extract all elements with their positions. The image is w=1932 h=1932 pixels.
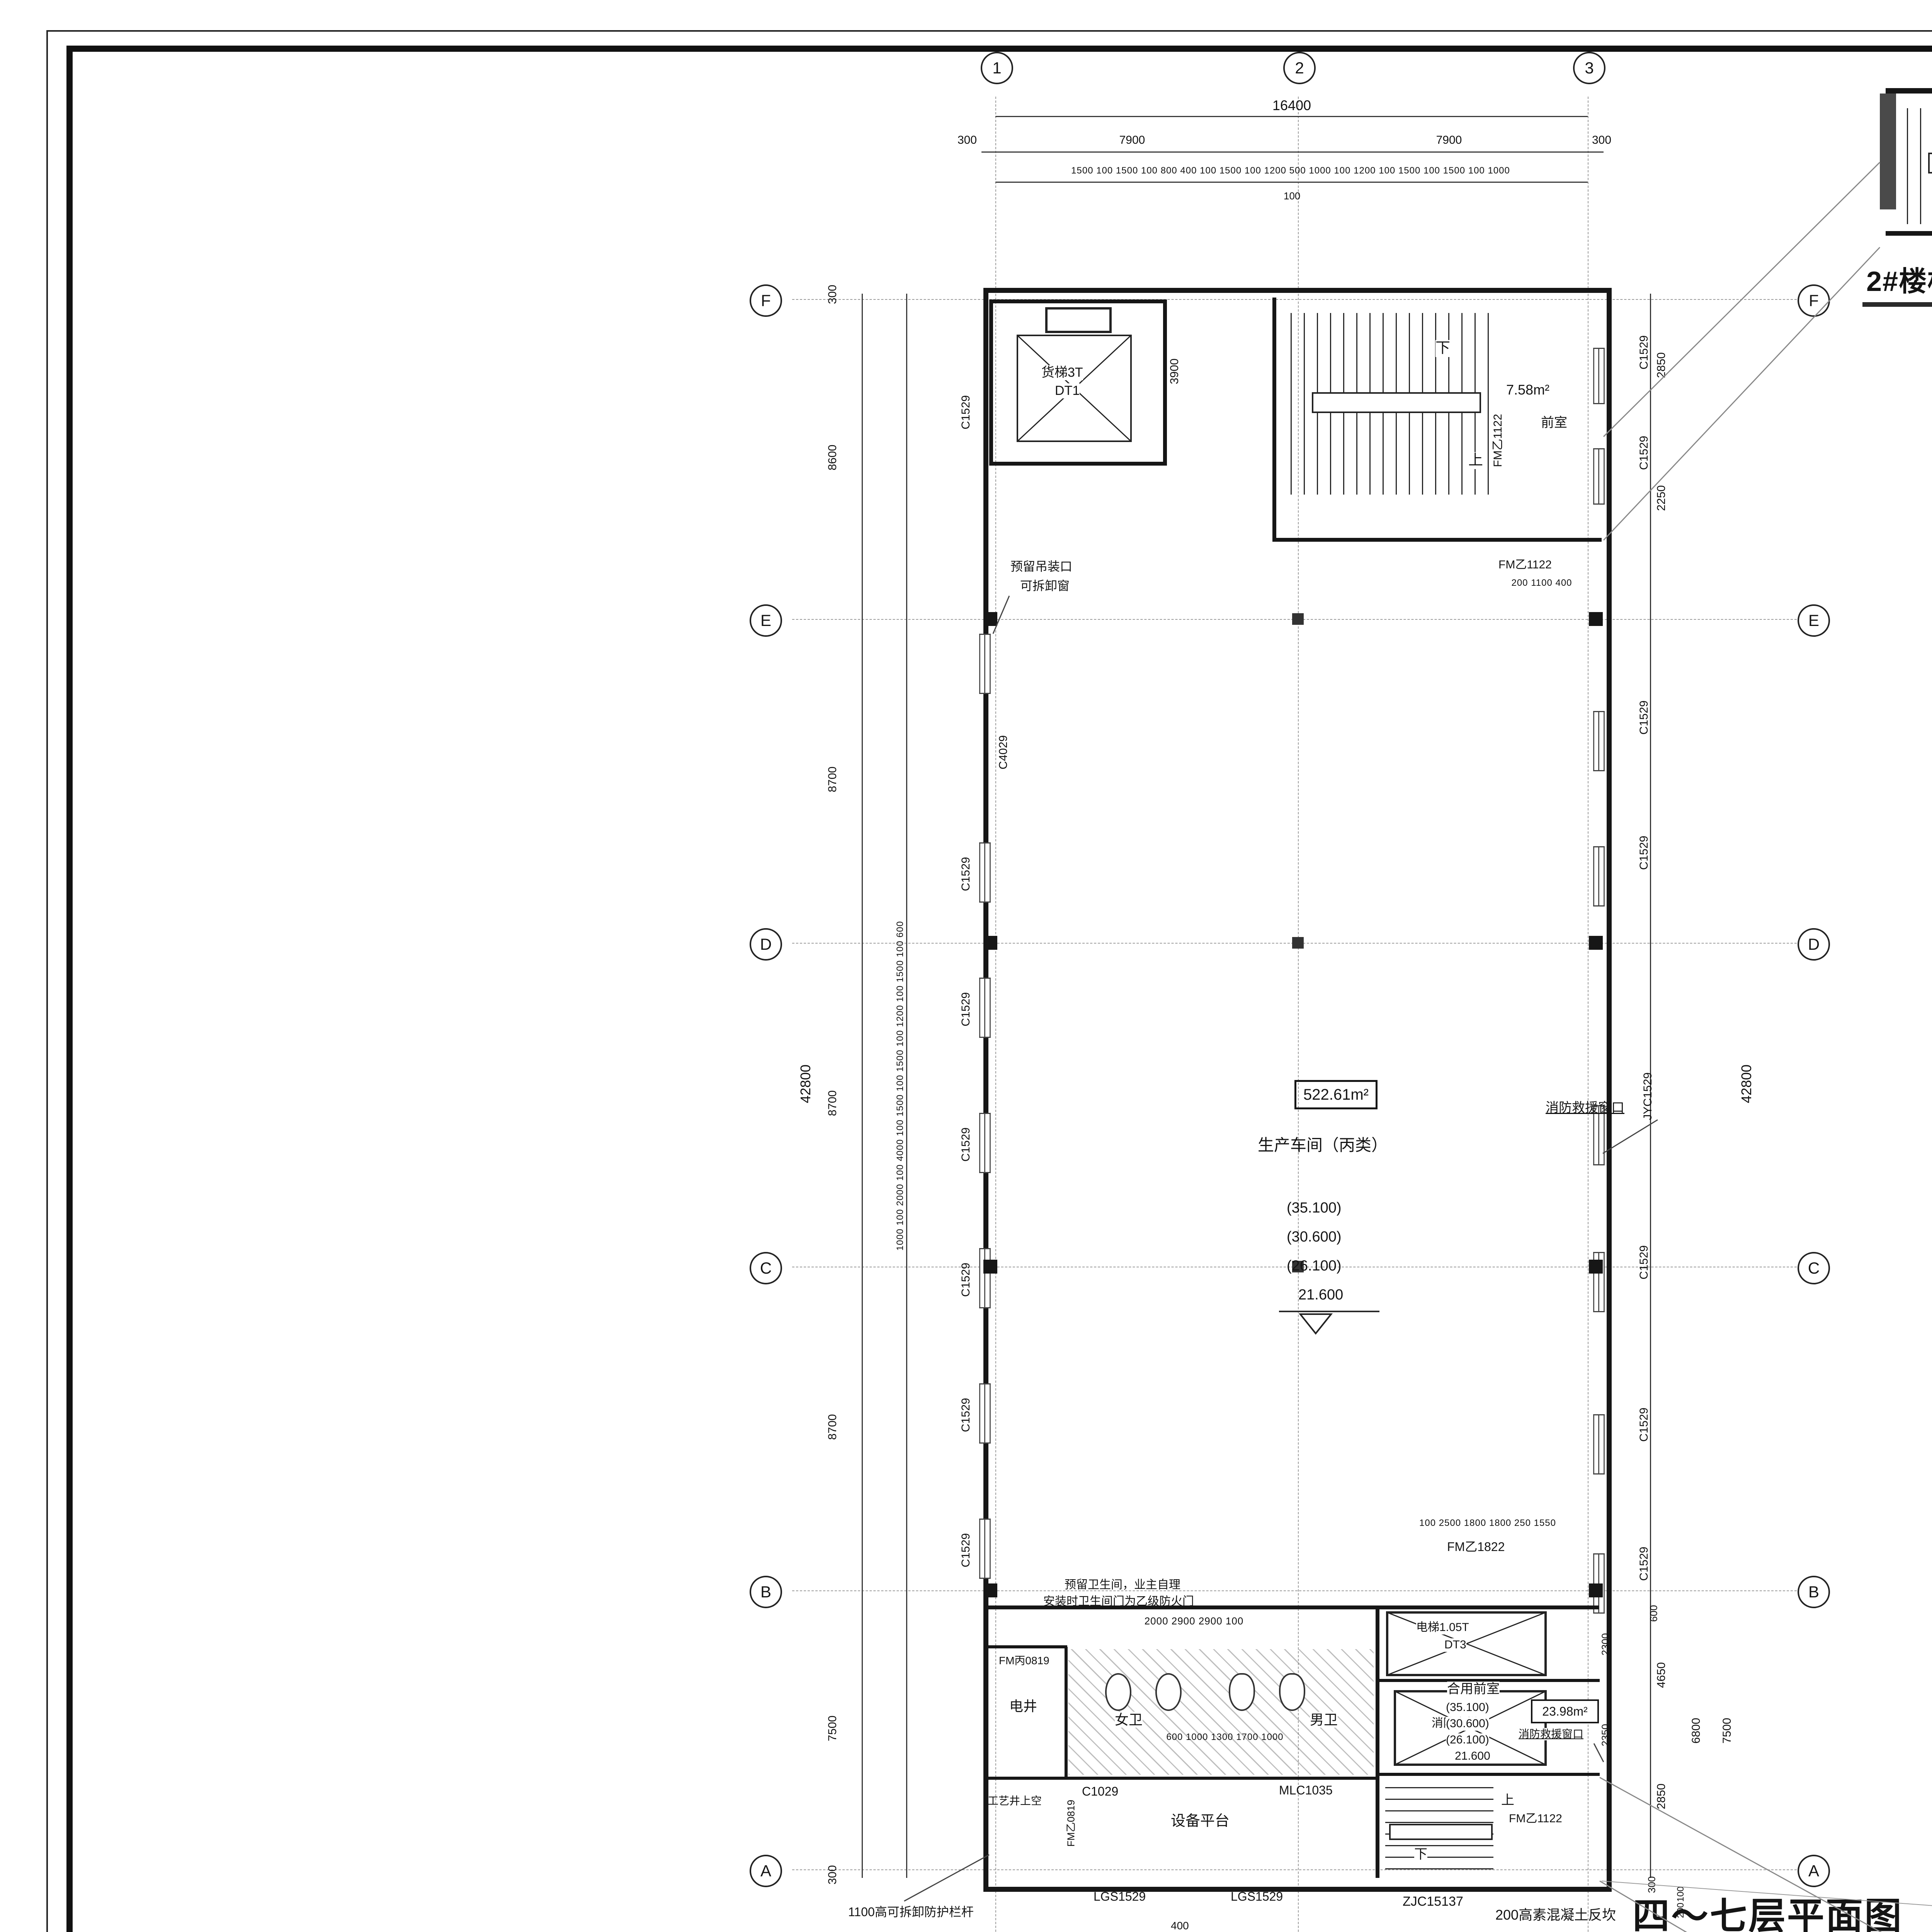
column	[983, 1583, 997, 1597]
detail-top-wall-left	[1880, 94, 1896, 209]
window	[1593, 1414, 1605, 1475]
shared-front-label: 合用前室	[1447, 1682, 1500, 1697]
level-2: (30.600)	[1287, 1229, 1342, 1246]
detail-top-rule	[1862, 302, 1932, 307]
column	[1589, 1583, 1603, 1597]
wc-female-label: 女卫	[1115, 1712, 1143, 1728]
elevator-counterweight	[1045, 307, 1112, 333]
window-tag-c1529: C1529	[1638, 1233, 1651, 1291]
dim-bblock-chain: 100 2500 1800 1800 250 1550	[1379, 1518, 1596, 1529]
dim-top-300r: 300	[1592, 134, 1611, 147]
shared-level-3: (26.100)	[1446, 1733, 1489, 1747]
window-tag-c1529: C1529	[1638, 824, 1651, 882]
grid-bubble-E-right: E	[1798, 604, 1830, 637]
dim-line	[981, 151, 1604, 153]
door-tag-mlc1035: MLC1035	[1279, 1783, 1333, 1798]
grid-bubble-col3-top: 3	[1573, 52, 1605, 84]
shared-level-1: (35.100)	[1446, 1701, 1489, 1714]
column	[983, 936, 997, 950]
wc-note-2: 安装时卫生间门为乙级防火门	[1043, 1595, 1194, 1609]
window	[979, 978, 991, 1038]
stair-wall	[1272, 538, 1602, 542]
grid-bubble-A-right: A	[1798, 1855, 1830, 1887]
dim-left-total: 42800	[798, 1045, 814, 1122]
elevator-dt3-no: DT3	[1444, 1638, 1466, 1652]
dim-right-600: 600	[1648, 1590, 1660, 1637]
block-wall	[986, 1645, 1067, 1648]
window-tag-c1529: C1529	[1638, 689, 1651, 747]
detail-top-wall-bottom	[1886, 231, 1932, 236]
equip-platform-label: 设备平台	[1171, 1813, 1230, 1830]
door-tag-fmb0819: FM丙0819	[999, 1655, 1049, 1667]
grid-bubble-D-left: D	[750, 928, 782, 961]
shared-level-2: (30.600)	[1446, 1717, 1489, 1731]
window-tag-c4029: C4029	[997, 719, 1010, 785]
grid-bubble-A-left: A	[750, 1855, 782, 1887]
dim-left-8600: 8600	[826, 427, 839, 488]
column	[1589, 1260, 1603, 1274]
window-tag-zjc15137: ZJC15137	[1403, 1894, 1463, 1909]
window-tag-lgs1529b: LGS1529	[1231, 1889, 1283, 1904]
process-shaft-label: 工艺井上空	[988, 1795, 1042, 1807]
window-tag-c1529: C1529	[1638, 1535, 1651, 1593]
window-tag-c1529: C1529	[959, 1386, 973, 1444]
dim-top-chain: 1500 100 1500 100 800 400 100 1500 100 1…	[989, 165, 1592, 176]
window	[979, 1248, 991, 1308]
door-tag-fmy1122: FM乙1122	[1498, 558, 1552, 572]
window-tag-c1529: C1529	[959, 1116, 973, 1173]
grid-bubble-col2-top: 2	[1283, 52, 1316, 84]
door-tag-fmy1822: FM乙1822	[1447, 1540, 1505, 1554]
dim-3900: 3900	[1168, 340, 1181, 402]
level-3: (26.100)	[1287, 1258, 1342, 1275]
column	[1292, 937, 1304, 949]
wc-male-label: 男卫	[1310, 1712, 1338, 1728]
grid-bubble-C-right: C	[1798, 1252, 1830, 1284]
freight-elevator-no: DT1	[1055, 383, 1080, 398]
bottom-stair-landing	[1389, 1824, 1493, 1840]
wc-note-1: 预留卫生间，业主自理	[1065, 1578, 1180, 1592]
workshop-area-box: 522.61m²	[1294, 1080, 1378, 1109]
block-wall	[1065, 1647, 1068, 1778]
dim-right-2850: 2850	[1655, 334, 1668, 396]
dim-right-2850b: 2850	[1655, 1765, 1668, 1827]
stair-up-label: 上	[1468, 452, 1483, 469]
dim-400: 400	[1171, 1920, 1189, 1932]
column	[983, 612, 997, 626]
dim-left-8700a: 8700	[826, 748, 839, 810]
window-tag-c1029: C1029	[1082, 1784, 1118, 1799]
window-tag-c1529: C1529	[1638, 424, 1651, 482]
grid-bubble-E-left: E	[750, 604, 782, 637]
dim-right-7500: 7500	[1721, 1700, 1734, 1762]
dim-left-300b: 300	[826, 1844, 839, 1906]
curb-label: 200高素混凝土反坎	[1495, 1907, 1616, 1923]
dim-left-300t: 300	[826, 264, 839, 325]
drawing-sheet: ※ 未加盖本单位出图专用章图纸无效。 ※ 此图册及相关技术文件版权归本单位所有。…	[0, 0, 1932, 1932]
window	[979, 1519, 991, 1579]
dim-top-7900r: 7900	[1352, 134, 1546, 147]
shared-area-box: 23.98m²	[1531, 1699, 1599, 1723]
grid-bubble-B-right: B	[1798, 1576, 1830, 1608]
detail-top-landing	[1928, 153, 1932, 173]
window-tag-c1529: C1529	[959, 383, 973, 441]
dim-right-2250: 2250	[1655, 467, 1668, 529]
window-tag-c1529: C1529	[959, 845, 973, 903]
wc-fixture	[1105, 1673, 1131, 1711]
window-tag-c1529: C1529	[959, 1251, 973, 1309]
hoist-note-2: 可拆卸窗	[1020, 579, 1070, 593]
level-underline	[1279, 1311, 1379, 1312]
window	[1593, 448, 1605, 505]
dim-line	[906, 294, 907, 1878]
dim-left-7500: 7500	[826, 1697, 839, 1759]
workshop-label: 生产车间（丙类）	[1258, 1136, 1388, 1155]
dim-right-total: 42800	[1738, 1045, 1755, 1122]
column	[1589, 936, 1603, 950]
dim-right-6800: 6800	[1690, 1700, 1703, 1762]
main-title: 四～七层平面图	[1633, 1895, 1903, 1932]
hoist-note-1: 预留吊装口	[1010, 560, 1072, 574]
window	[1593, 846, 1605, 906]
dim-right-4650: 4650	[1655, 1644, 1668, 1706]
window	[979, 634, 991, 694]
bottom-stair-down: 下	[1414, 1847, 1427, 1862]
dim-top-7900l: 7900	[1036, 134, 1229, 147]
dim-line	[995, 182, 1588, 183]
elevator-dt3-label: 电梯1.05T	[1416, 1621, 1469, 1634]
detail-top-wall	[1886, 88, 1932, 94]
dim-2300: 2300	[1600, 1619, 1612, 1670]
wc-fixture	[1155, 1673, 1182, 1711]
block-wall	[1376, 1605, 1379, 1878]
shared-level-4: 21.600	[1455, 1750, 1490, 1763]
column	[1589, 612, 1603, 626]
block-wall	[1376, 1773, 1600, 1776]
door-tag-fmy1122-top: FM乙1122	[1488, 408, 1505, 473]
grid-bubble-C-left: C	[750, 1252, 782, 1284]
window-tag-c1529: C1529	[959, 980, 973, 1038]
grid-bubble-D-right: D	[1798, 928, 1830, 961]
rail-label: 1100高可拆卸防护栏杆	[848, 1905, 974, 1919]
dim-wc-chain: 600 1000 1300 1700 1000	[1078, 1732, 1372, 1743]
window	[979, 1383, 991, 1444]
wc-fixture	[1229, 1673, 1255, 1711]
dim-left-8700b: 8700	[826, 1072, 839, 1134]
stair-down-label: 下	[1435, 340, 1450, 357]
front-room-label: 前室	[1541, 415, 1567, 430]
level-4: 21.600	[1298, 1287, 1343, 1304]
grid-bubble-col1-top: 1	[981, 52, 1013, 84]
dim-top-300l: 300	[957, 134, 977, 147]
dim-left-8700c: 8700	[826, 1396, 839, 1458]
bottom-stair-up: 上	[1501, 1793, 1514, 1808]
door-tag-fmy0819: FM乙0819	[1063, 1789, 1078, 1858]
door-tag-fmy1122-bottom: FM乙1122	[1509, 1812, 1562, 1826]
column	[983, 1260, 997, 1274]
wc-fixture	[1279, 1673, 1305, 1711]
dim-top-mid100: 100	[1284, 190, 1300, 202]
dim-left-chain: 1000 100 2000 100 4000 100 1500 100 1500…	[895, 332, 906, 1839]
stair-landing	[1312, 392, 1481, 413]
grid-bubble-F-left: F	[750, 284, 782, 317]
level-1: (35.100)	[1287, 1200, 1342, 1217]
window-tag-c1529: C1529	[1638, 323, 1651, 381]
detail-top-title: 2#楼梯五～七层平面图	[1866, 266, 1932, 298]
window-tag-lgs1529: LGS1529	[1094, 1889, 1146, 1904]
shaft-label: 电井	[1009, 1698, 1037, 1714]
window	[1593, 711, 1605, 771]
front-room-area: 7.58m²	[1506, 382, 1549, 398]
column	[1292, 613, 1304, 625]
window	[1593, 348, 1605, 404]
freight-elevator-label: 货梯3T	[1041, 365, 1083, 380]
rescue-window-label-right: 消防救援窗口	[1546, 1100, 1624, 1116]
stair-wall	[1272, 298, 1276, 541]
dim-line	[862, 294, 863, 1878]
block-wall	[986, 1777, 1379, 1780]
window	[979, 1113, 991, 1173]
rescue-window-label-bottom: 消防救援窗口	[1519, 1728, 1583, 1740]
dim-door-chain: 200 1100 400	[1488, 578, 1596, 588]
window	[979, 842, 991, 903]
window-tag-jyc1529: JYC1529	[1641, 1060, 1655, 1133]
grid-bubble-B-left: B	[750, 1576, 782, 1608]
window-tag-c1529: C1529	[1638, 1396, 1651, 1454]
dim-top-total: 16400	[1214, 97, 1369, 114]
dim-line	[995, 116, 1588, 117]
dim-2350: 2350	[1600, 1710, 1612, 1760]
grid-bubble-F-right: F	[1798, 284, 1830, 317]
window-tag-c1529: C1529	[959, 1521, 973, 1579]
dim-wc-top: 2000 2900 2900 100	[1005, 1615, 1383, 1627]
